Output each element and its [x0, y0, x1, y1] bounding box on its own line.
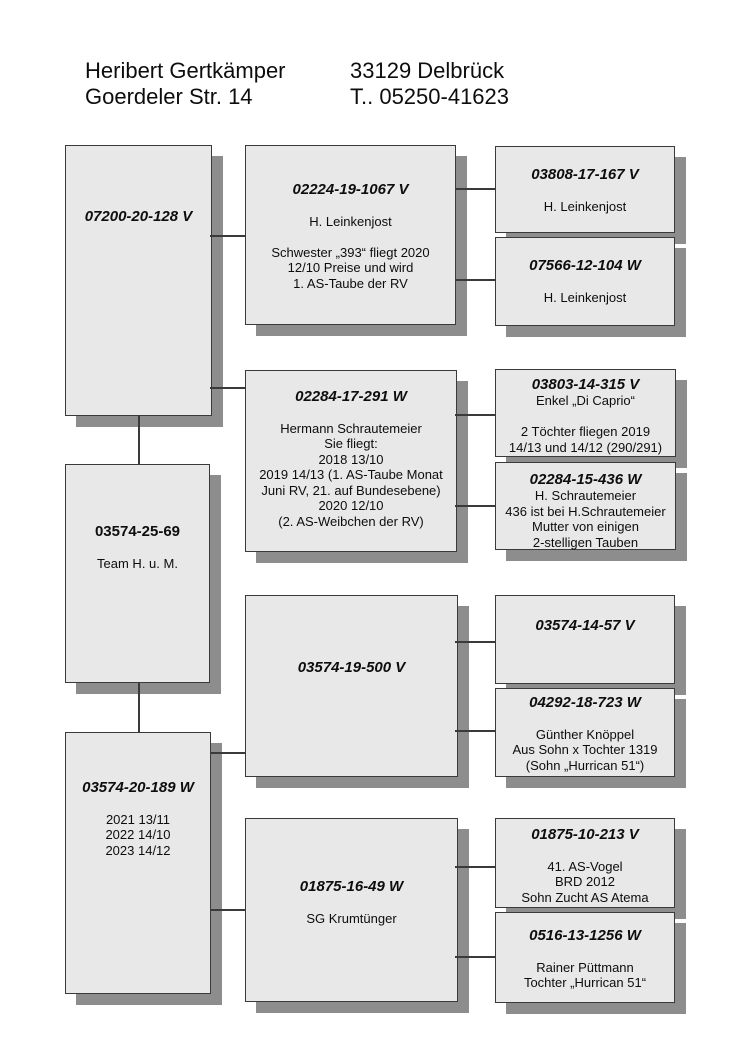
box-text-line: Enkel „Di Caprio“ — [488, 393, 683, 409]
pedigree-box-sire: 07200-20-128 V — [65, 145, 212, 416]
box-text-line: Aus Sohn x Tochter 1319 — [488, 742, 682, 758]
connector-l3-m3 — [210, 752, 246, 754]
pedigree-box-greatgrandparent-2: 07566-12-104 W H. Leinkenjost — [495, 237, 675, 326]
box-text-line — [238, 229, 463, 245]
ring-number: 07566-12-104 W — [496, 257, 674, 274]
ring-number: 01875-16-49 W — [246, 878, 457, 895]
box-text-line: H. Leinkenjost — [238, 214, 463, 230]
box-text-line: 41. AS-Vogel — [488, 859, 682, 875]
pedigree-box-grandparent-4: 01875-16-49 W SG Krumtünger — [245, 818, 458, 1002]
box-text-line: 1. AS-Taube der RV — [238, 276, 463, 292]
box-text-line: Tochter „Hurrican 51“ — [488, 975, 682, 991]
box-text-line — [58, 540, 217, 556]
box-text-line: Schwester „393“ fliegt 2020 — [238, 245, 463, 261]
ring-number: 0516-13-1256 W — [496, 927, 674, 944]
pedigree-box-dam: 03574-20-189 W 2021 13/11 2022 14/10 202… — [65, 732, 211, 994]
ring-number: 01875-10-213 V — [496, 826, 674, 843]
ring-number: 02284-17-291 W — [246, 388, 456, 405]
box-text-line: Mutter von einigen — [488, 519, 683, 535]
box-text-line: H. Leinkenjost — [488, 199, 682, 215]
box-text-line — [488, 711, 682, 727]
pedigree-chart: Heribert Gertkämper Goerdeler Str. 14 33… — [0, 0, 750, 1061]
box-text-line — [488, 843, 682, 859]
box-text-line: 14/13 und 14/12 (290/291) — [488, 440, 683, 456]
pedigree-box-greatgrandparent-5: 03574-14-57 V — [495, 595, 675, 684]
box-text-line — [58, 796, 218, 812]
box-text-line — [238, 198, 463, 214]
owner-name: Heribert Gertkämper — [85, 58, 286, 84]
box-text-line: H. Schrautemeier — [488, 488, 683, 504]
pedigree-box-greatgrandparent-4: 02284-15-436 W H. Schrautemeier 436 ist … — [495, 462, 676, 550]
connector-l1-m2 — [210, 387, 246, 389]
ring-number: 07200-20-128 V — [66, 208, 211, 225]
box-text-line: BRD 2012 — [488, 874, 682, 890]
box-text-line: (Sohn „Hurrican 51“) — [488, 758, 682, 774]
ring-number: 02284-15-436 W — [496, 471, 675, 488]
ring-number: 02224-19-1067 V — [246, 181, 455, 198]
connector-m2-r3 — [455, 414, 496, 416]
box-text-line: 2019 14/13 (1. AS-Taube Monat — [238, 467, 464, 483]
connector-l1-m1 — [210, 235, 246, 237]
connector-m4-r7 — [455, 866, 496, 868]
owner-street: Goerdeler Str. 14 — [85, 84, 253, 110]
connector-m3-r6 — [455, 730, 496, 732]
pedigree-box-grandparent-2: 02284-17-291 W Hermann Schrautemeier Sie… — [245, 370, 457, 552]
box-text-line: 2 Töchter fliegen 2019 — [488, 424, 683, 440]
box-text-line — [238, 405, 464, 421]
ring-number: 03574-19-500 V — [246, 659, 457, 676]
connector-m1-r1 — [455, 188, 496, 190]
box-text-line: SG Krumtünger — [238, 911, 465, 927]
box-text-line: 2021 13/11 — [58, 812, 218, 828]
pedigree-box-subject: 03574-25-69 Team H. u. M. — [65, 464, 210, 683]
owner-city: 33129 Delbrück — [350, 58, 504, 84]
connector-m3-r5 — [455, 641, 496, 643]
box-text-line: 2-stelligen Tauben — [488, 535, 683, 551]
connector-subject-dam — [138, 683, 140, 732]
box-text-line: Sohn Zucht AS Atema — [488, 890, 682, 906]
connector-m4-r8 — [455, 956, 496, 958]
pedigree-box-greatgrandparent-1: 03808-17-167 V H. Leinkenjost — [495, 146, 675, 233]
owner-phone: T.. 05250-41623 — [350, 84, 509, 110]
ring-number: 03574-14-57 V — [496, 617, 674, 634]
box-text-line: Sie fliegt: — [238, 436, 464, 452]
box-text-line: Team H. u. M. — [58, 556, 217, 572]
ring-number: 03803-14-315 V — [496, 376, 675, 393]
pedigree-box-greatgrandparent-8: 0516-13-1256 W Rainer Püttmann Tochter „… — [495, 912, 675, 1003]
ring-number: 03574-25-69 — [66, 523, 209, 540]
box-text-line: 2023 14/12 — [58, 843, 218, 859]
pedigree-box-grandparent-3: 03574-19-500 V — [245, 595, 458, 777]
box-text-line: Hermann Schrautemeier — [238, 421, 464, 437]
box-text-line: 2020 12/10 — [238, 498, 464, 514]
box-text-line — [488, 183, 682, 199]
box-text-line: 2022 14/10 — [58, 827, 218, 843]
pedigree-box-grandparent-1: 02224-19-1067 V H. Leinkenjost Schwester… — [245, 145, 456, 325]
connector-l3-m4 — [210, 909, 246, 911]
connector-m2-r4 — [455, 505, 496, 507]
connector-m1-r2 — [455, 279, 496, 281]
pedigree-box-greatgrandparent-7: 01875-10-213 V 41. AS-Vogel BRD 2012 Soh… — [495, 818, 675, 908]
box-text-line — [488, 274, 682, 290]
box-text-line — [238, 895, 465, 911]
box-text-line — [488, 944, 682, 960]
ring-number: 04292-18-723 W — [496, 694, 674, 711]
box-text-line: H. Leinkenjost — [488, 290, 682, 306]
pedigree-box-greatgrandparent-6: 04292-18-723 W Günther Knöppel Aus Sohn … — [495, 688, 675, 777]
box-text-line: Günther Knöppel — [488, 727, 682, 743]
ring-number: 03808-17-167 V — [496, 166, 674, 183]
box-text-line: 436 ist bei H.Schrautemeier — [488, 504, 683, 520]
box-text-line — [488, 409, 683, 425]
box-text-line: Juni RV, 21. auf Bundesebene) — [238, 483, 464, 499]
pedigree-box-greatgrandparent-3: 03803-14-315 V Enkel „Di Caprio“ 2 Töcht… — [495, 369, 676, 457]
box-text-line: (2. AS-Weibchen der RV) — [238, 514, 464, 530]
ring-number: 03574-20-189 W — [66, 779, 210, 796]
box-text-line: Rainer Püttmann — [488, 960, 682, 976]
box-text-line: 12/10 Preise und wird — [238, 260, 463, 276]
box-text-line: 2018 13/10 — [238, 452, 464, 468]
connector-sire-subject — [138, 416, 140, 464]
